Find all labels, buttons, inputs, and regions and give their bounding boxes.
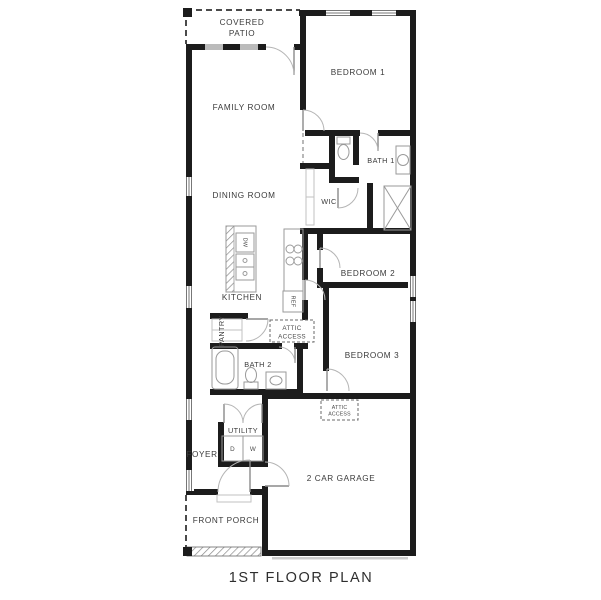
room-label-bedroom-1: BEDROOM 1 xyxy=(331,68,386,77)
porch-edge-dashed xyxy=(186,495,261,556)
utility-double-door-swing xyxy=(224,404,262,423)
window-foyer-a xyxy=(184,399,194,420)
walls xyxy=(183,8,416,556)
room-label-kitchen: KITCHEN xyxy=(222,293,262,302)
room-label-wic: WIC xyxy=(321,197,336,206)
room-label-family-room: FAMILY ROOM xyxy=(213,103,276,112)
window-bedroom2 xyxy=(408,276,418,297)
island-bar-top xyxy=(226,226,234,292)
sink-icon-bath2 xyxy=(266,372,286,389)
floor-plan-drawing: COVERED PATIO FAMILY ROOM BEDROOM 1 BATH… xyxy=(0,0,601,600)
window-kitchen xyxy=(184,286,194,308)
label-dryer: D xyxy=(230,446,235,453)
toilet-icon-bath1 xyxy=(337,137,350,160)
floor-plan-page: COVERED PATIO FAMILY ROOM BEDROOM 1 BATH… xyxy=(0,0,601,600)
window-family-a xyxy=(205,45,223,49)
label-attic-access-garage-1: ATTIC xyxy=(332,405,348,411)
bedroom3-door-swing xyxy=(327,369,349,391)
bath1-door-swing xyxy=(360,133,378,151)
sink-icon-bath1 xyxy=(396,146,410,174)
label-attic-access-hall-2: ACCESS xyxy=(278,334,306,341)
garage-entry-door-swing xyxy=(265,462,289,486)
wic-door-swing xyxy=(338,188,358,208)
kitchen-island xyxy=(226,226,256,292)
window-bedroom3 xyxy=(408,301,418,322)
porch-step-hatch xyxy=(187,547,261,556)
wic-shelving xyxy=(306,169,314,225)
room-label-foyer: FOYER xyxy=(186,450,217,459)
label-refrigerator: REF xyxy=(290,296,296,308)
window-family-b xyxy=(240,45,258,49)
window-bedroom1-a xyxy=(326,9,350,17)
room-label-bath-2: BATH 2 xyxy=(244,360,271,369)
cooktop-icon xyxy=(286,245,302,265)
window-bedroom1-b xyxy=(372,9,396,17)
label-attic-access-hall-1: ATTIC xyxy=(282,325,301,332)
shower-icon-bath1 xyxy=(384,186,411,230)
patio-post xyxy=(183,8,192,17)
room-label-front-porch: FRONT PORCH xyxy=(193,516,260,525)
bathtub-icon xyxy=(212,347,238,389)
patio-door-swing xyxy=(266,47,294,75)
room-label-garage: 2 CAR GARAGE xyxy=(307,474,376,483)
plan-title: 1ST FLOOR PLAN xyxy=(229,570,374,586)
room-label-bath-1: BATH 1 xyxy=(367,156,394,165)
bath2-door-swing xyxy=(279,347,295,363)
window-dining xyxy=(184,177,194,196)
room-label-utility: UTILITY xyxy=(228,426,258,435)
label-dishwasher: DW xyxy=(242,238,248,248)
label-attic-access-garage-2: ACCESS xyxy=(328,412,351,418)
label-washer: W xyxy=(250,446,256,453)
toilet-icon-bath2 xyxy=(244,368,258,390)
pantry-door-swing xyxy=(246,319,268,341)
bedroom1-door-swing xyxy=(303,110,324,131)
bedroom2-door-swing xyxy=(320,248,340,268)
garage-door-line xyxy=(272,557,408,560)
room-label-covered-patio-1: COVERED xyxy=(220,18,265,27)
patio-edge-dashed xyxy=(186,10,300,44)
room-label-covered-patio-2: PATIO xyxy=(229,29,255,38)
front-door-step xyxy=(217,495,251,502)
window-foyer-b xyxy=(184,470,194,491)
porch-post xyxy=(183,547,192,556)
room-label-bedroom-3: BEDROOM 3 xyxy=(345,351,400,360)
room-label-bedroom-2: BEDROOM 2 xyxy=(341,269,396,278)
kitchen-sink-icon xyxy=(236,254,254,280)
room-label-pantry: PANTRY xyxy=(217,315,226,346)
room-label-dining-room: DINING ROOM xyxy=(212,191,275,200)
